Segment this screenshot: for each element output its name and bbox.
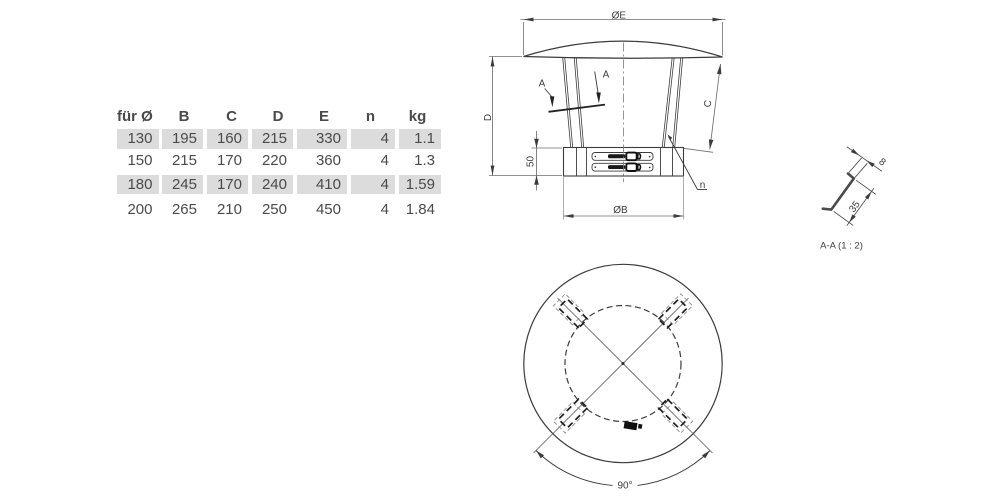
- svg-text:C: C: [703, 99, 715, 108]
- svg-text:A: A: [539, 79, 546, 90]
- svg-text:ØE: ØE: [612, 11, 627, 22]
- svg-text:90°: 90°: [617, 481, 632, 492]
- svg-text:A-A (1 : 2): A-A (1 : 2): [820, 241, 863, 252]
- svg-text:ØB: ØB: [613, 205, 628, 216]
- svg-text:8: 8: [876, 156, 888, 168]
- svg-text:A: A: [603, 70, 610, 81]
- svg-text:D: D: [483, 114, 494, 121]
- svg-text:35: 35: [847, 199, 863, 215]
- svg-text:50: 50: [526, 156, 537, 168]
- svg-text:n: n: [700, 180, 706, 191]
